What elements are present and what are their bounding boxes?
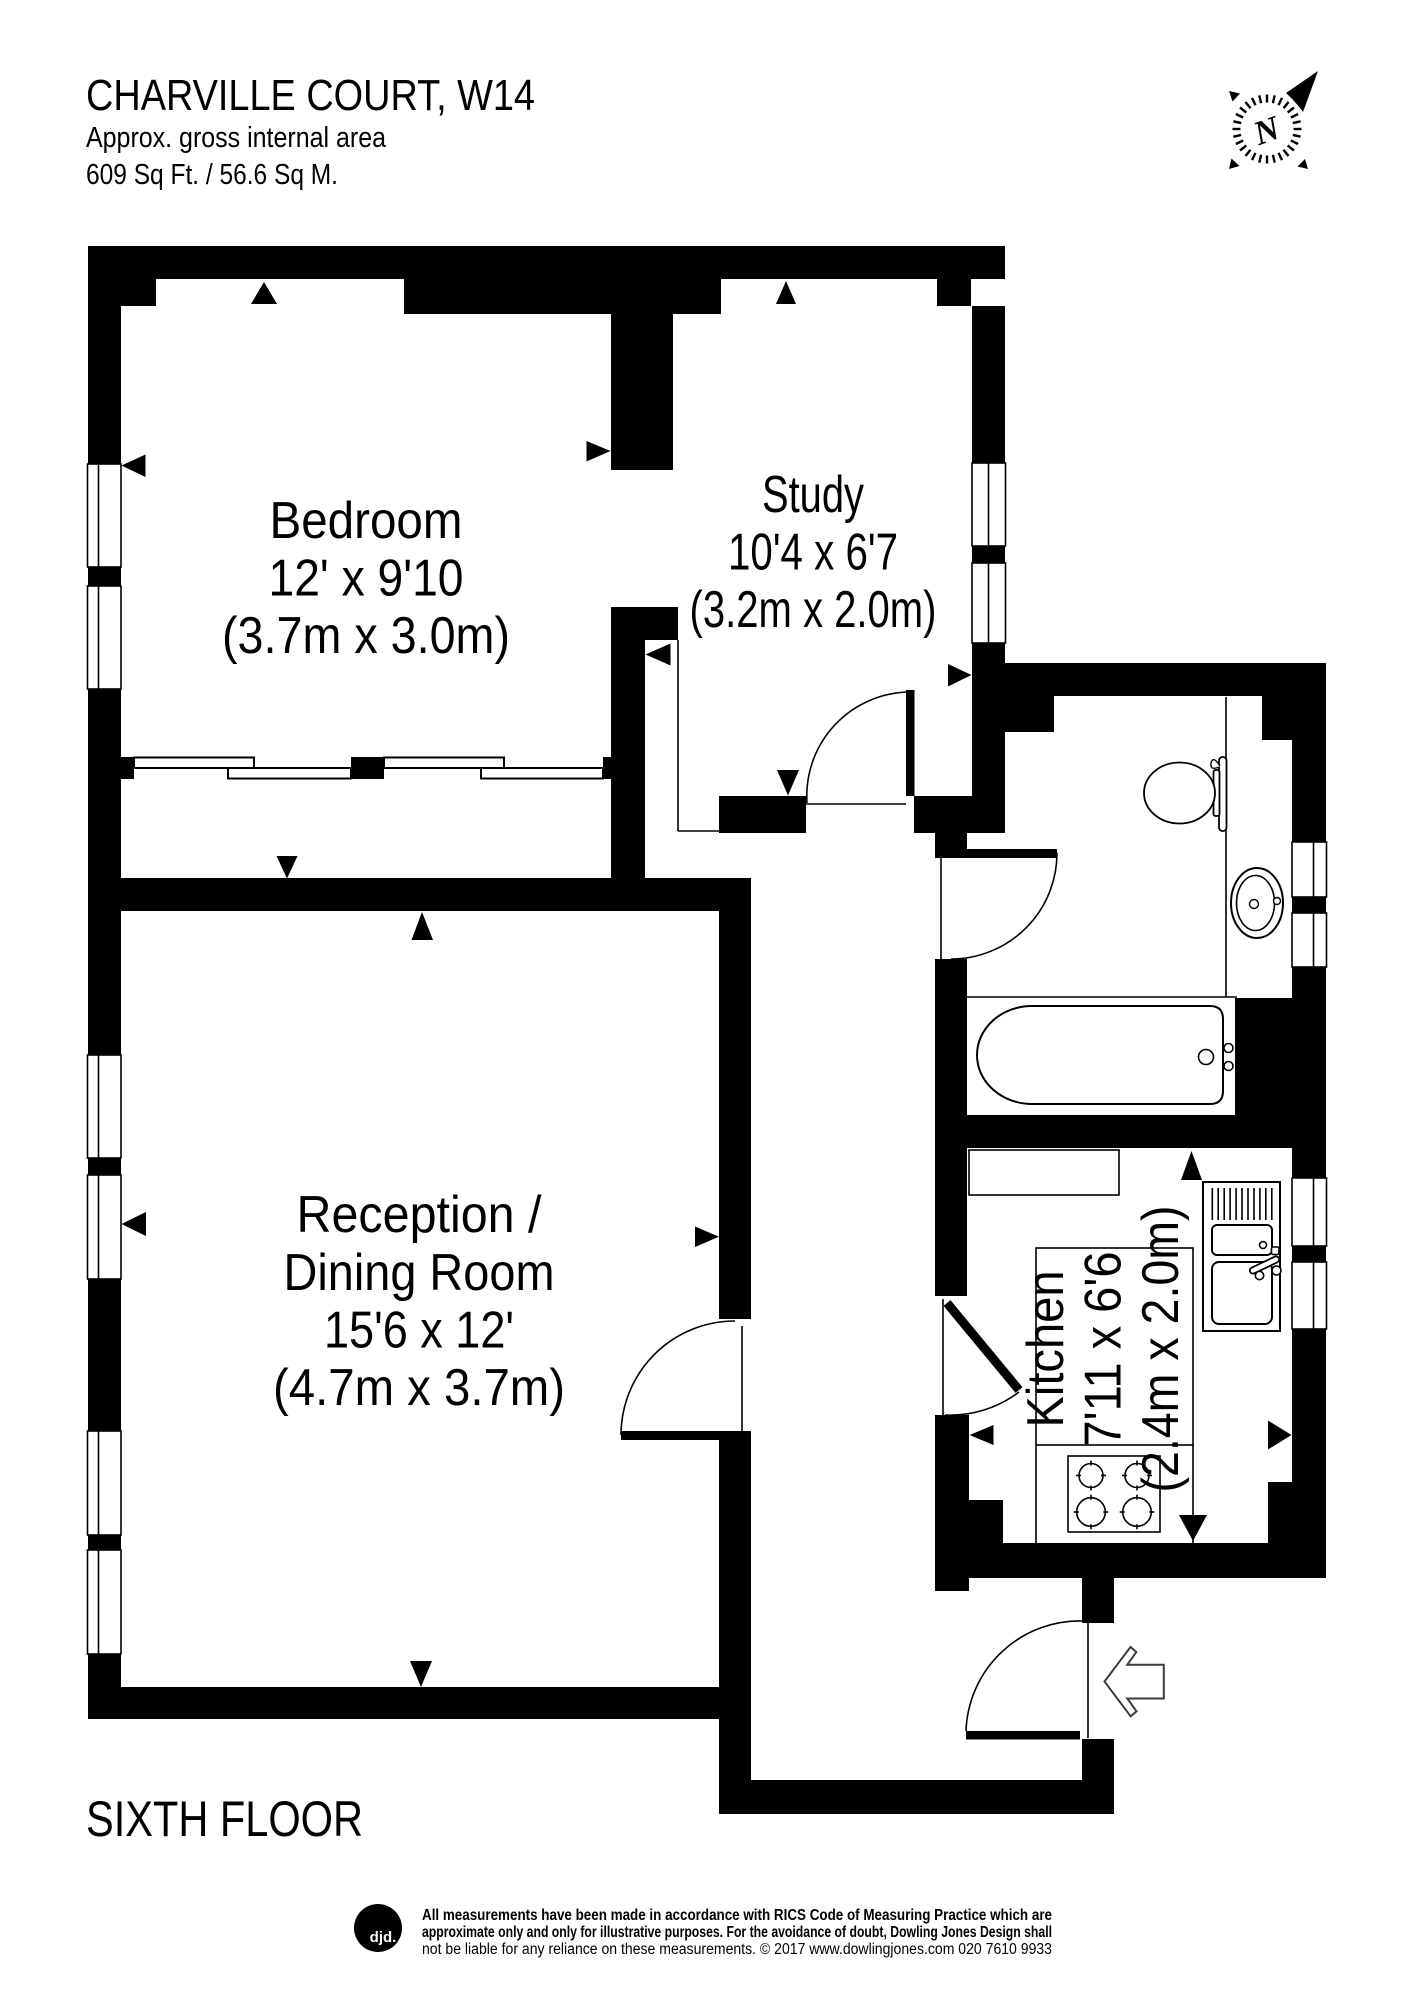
svg-text:609 Sq Ft. / 56.6 Sq M.: 609 Sq Ft. / 56.6 Sq M. xyxy=(86,159,338,191)
svg-text:All measurements have been mad: All measurements have been made in accor… xyxy=(422,1907,1052,1924)
svg-text:12' x 9'10: 12' x 9'10 xyxy=(269,550,464,608)
svg-text:not be liable for any reliance: not be liable for any reliance on these … xyxy=(422,1941,1052,1958)
svg-text:Bedroom: Bedroom xyxy=(270,492,463,550)
svg-text:(3.2m x 2.0m): (3.2m x 2.0m) xyxy=(690,581,937,639)
svg-text:Study: Study xyxy=(762,466,864,524)
svg-text:15'6 x 12': 15'6 x 12' xyxy=(324,1302,514,1360)
svg-text:approximate only and only for: approximate only and only for illustrati… xyxy=(422,1924,1052,1941)
svg-text:Dining Room: Dining Room xyxy=(284,1244,555,1302)
svg-text:CHARVILLE COURT, W14: CHARVILLE COURT, W14 xyxy=(86,71,535,120)
svg-text:Reception /: Reception / xyxy=(297,1186,543,1244)
svg-text:(4.7m x 3.7m): (4.7m x 3.7m) xyxy=(273,1359,565,1417)
svg-text:7'11 x 6'6: 7'11 x 6'6 xyxy=(1075,1252,1133,1447)
svg-text:djd.: djd. xyxy=(370,1929,397,1946)
svg-text:(2.4m x 2.0m): (2.4m x 2.0m) xyxy=(1132,1206,1190,1493)
svg-text:(3.7m x 3.0m): (3.7m x 3.0m) xyxy=(222,607,510,665)
svg-text:10'4 x 6'7: 10'4 x 6'7 xyxy=(728,524,898,582)
svg-text:Kitchen: Kitchen xyxy=(1017,1271,1075,1428)
svg-text:SIXTH FLOOR: SIXTH FLOOR xyxy=(86,1791,363,1847)
svg-text:Approx. gross internal area: Approx. gross internal area xyxy=(86,122,387,154)
